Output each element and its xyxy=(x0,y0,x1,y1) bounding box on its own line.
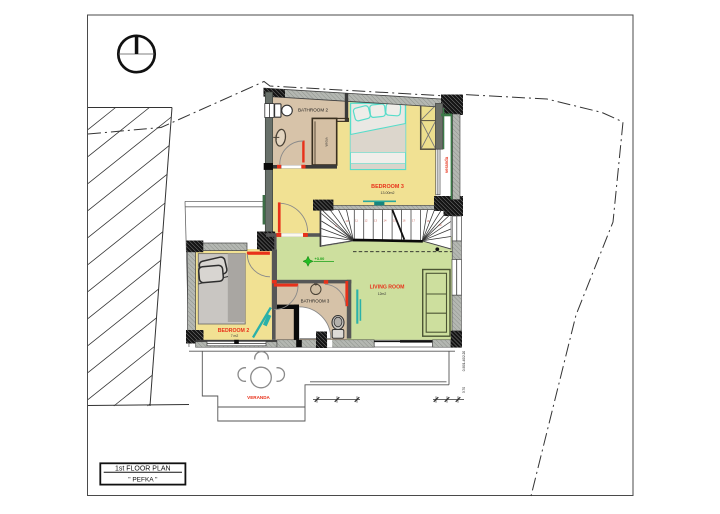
svg-text:12m2: 12m2 xyxy=(378,292,387,296)
svg-text:BATHROOM 2: BATHROOM 2 xyxy=(298,108,328,113)
svg-text:veranda: veranda xyxy=(444,156,449,173)
svg-text:7 m2: 7 m2 xyxy=(231,334,239,338)
svg-text:3.70: 3.70 xyxy=(462,387,466,393)
svg-text:BEDROOM 3: BEDROOM 3 xyxy=(371,184,404,190)
svg-text:0.90/1.40/2.20: 0.90/1.40/2.20 xyxy=(462,351,466,372)
svg-text:+3.00: +3.00 xyxy=(315,256,325,261)
svg-text:BATHROOM 3: BATHROOM 3 xyxy=(301,298,330,303)
svg-text:13.00m2: 13.00m2 xyxy=(381,191,395,195)
svg-text:ντουλ: ντουλ xyxy=(325,137,329,146)
svg-text:VERANDA: VERANDA xyxy=(247,395,270,400)
svg-text:LIVING ROOM: LIVING ROOM xyxy=(370,285,405,291)
svg-text:1st FLOOR PLAN: 1st FLOOR PLAN xyxy=(115,465,171,472)
svg-text:" PEFKA ": " PEFKA " xyxy=(128,476,158,483)
